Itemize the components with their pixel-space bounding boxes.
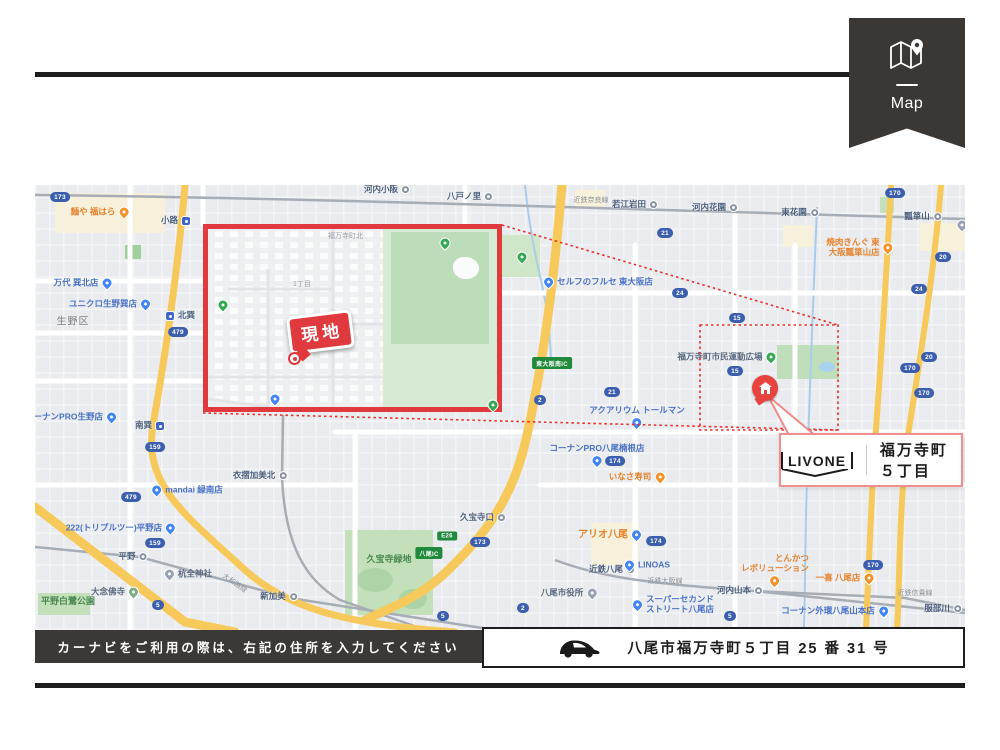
govt-marker-icon xyxy=(584,585,600,601)
poi-コーナンPRO八尾楠根店: コーナンPRO八尾楠根店 xyxy=(550,444,645,466)
poi-コーナン外環八尾山本店: コーナン外環八尾山本店 xyxy=(781,606,889,617)
poi-若江岩田: 若江岩田 xyxy=(612,200,658,210)
st-sub-marker-icon xyxy=(155,421,165,431)
address-text: 八尾市福万寺町５丁目 25 番 31 号 xyxy=(627,637,889,658)
route-badge-5: 5 xyxy=(152,600,164,610)
address-box: 八尾市福万寺町５丁目 25 番 31 号 xyxy=(482,627,965,668)
shop-marker-icon xyxy=(99,275,115,291)
st-rail-marker-icon xyxy=(401,185,410,194)
shop-marker-icon xyxy=(589,453,605,469)
poi-mandai-緑南店: mandai 緑南店 xyxy=(151,485,223,496)
map-inset: 福万寺町北 1丁目 現地 xyxy=(203,224,502,412)
route-badge-170: 170 xyxy=(914,388,934,398)
map-icon xyxy=(888,38,926,77)
poi-pin xyxy=(517,252,528,263)
poi-瓢箪山: 瓢箪山 xyxy=(904,212,942,222)
poi-八尾市役所: 八尾市役所 xyxy=(541,588,598,599)
poi-新加美: 新加美 xyxy=(260,592,298,602)
poi-pin-b xyxy=(270,394,281,405)
shop-marker-icon xyxy=(629,415,645,431)
poi-大和路線: 大和路線 xyxy=(220,573,248,596)
poi-近鉄大阪線: 近鉄大阪線 xyxy=(648,578,683,586)
poi-衣摺加美北: 衣摺加美北 xyxy=(233,471,288,481)
map-ribbon: Map xyxy=(849,18,965,148)
house-icon xyxy=(759,382,772,394)
map[interactable]: 小路北巽南巽河内小阪八戸ノ里若江岩田河内花園東花園瓢箪山久宝寺口近鉄八尾河内山本… xyxy=(35,185,965,630)
route-badge-21: 21 xyxy=(604,387,620,397)
page: Map xyxy=(0,0,1000,750)
pin-g-marker-icon xyxy=(954,217,965,233)
food-marker-icon xyxy=(880,240,896,256)
route-badge-479: 479 xyxy=(121,492,141,502)
food-marker-icon xyxy=(767,572,783,588)
shrine-marker-icon xyxy=(162,566,178,582)
route-badge-173: 173 xyxy=(50,192,70,202)
pin-marker-icon xyxy=(437,235,453,251)
route-badge-24: 24 xyxy=(672,288,688,298)
site-home-marker xyxy=(752,375,778,401)
route-badge-173: 173 xyxy=(470,537,490,547)
poi-大念佛寺: 大念佛寺 xyxy=(91,587,139,598)
route-badge-159: 159 xyxy=(145,538,165,548)
food-marker-icon xyxy=(861,570,877,586)
route-badge-170: 170 xyxy=(863,560,883,570)
poi-久宝寺口: 久宝寺口 xyxy=(460,513,506,523)
inset-pin-layer xyxy=(208,229,497,407)
poi-南巽: 南巽 xyxy=(135,421,165,431)
shop-marker-icon xyxy=(630,597,646,613)
route-badge-21: 21 xyxy=(657,228,673,238)
route-badge-159: 159 xyxy=(145,442,165,452)
top-rule xyxy=(35,72,849,77)
navi-instruction-bar: カーナビをご利用の際は、右記の住所を入力してください xyxy=(35,630,482,663)
poi-河内山本: 河内山本 xyxy=(717,586,763,596)
st-rail-marker-icon xyxy=(810,208,819,217)
ribbon-label: Map xyxy=(891,95,924,113)
st-rail-marker-icon xyxy=(729,203,738,212)
temple-marker-icon xyxy=(126,584,142,600)
poi-pin xyxy=(218,300,229,311)
poi-生野区: 生野区 xyxy=(57,316,90,328)
shop-marker-icon xyxy=(163,520,179,536)
pin-marker-icon xyxy=(485,397,501,413)
poi-北巽: 北巽 xyxy=(165,311,195,321)
food-marker-icon xyxy=(652,469,668,485)
poi-スーパーセカンド-ストリート八尾店: スーパーセカンドストリート八尾店 xyxy=(632,595,714,615)
pin-marker-icon xyxy=(215,297,231,313)
poi-アリオ八尾: アリオ八尾 xyxy=(578,529,642,541)
route-badge-479: 479 xyxy=(168,327,188,337)
shop-marker-icon xyxy=(149,482,165,498)
navi-instruction-text: カーナビをご利用の際は、右記の住所を入力してください xyxy=(57,637,459,656)
route-badge-170: 170 xyxy=(885,188,905,198)
pin-b-marker-icon xyxy=(267,391,283,407)
livone-logo: LIVONE xyxy=(781,452,853,469)
poi-LINOAS: LINOAS xyxy=(624,560,670,571)
route-badge-5: 5 xyxy=(437,611,449,621)
st-rail-marker-icon xyxy=(484,192,493,201)
shop-marker-icon xyxy=(875,603,891,619)
route-badge-15: 15 xyxy=(729,313,745,323)
car-icon xyxy=(557,638,601,658)
poi-ユニクロ生野巽店: ユニクロ生野巽店 xyxy=(69,299,151,310)
poi-服部川: 服部川 xyxy=(924,604,962,614)
callout-divider xyxy=(866,445,867,475)
route-badge-170: 170 xyxy=(900,363,920,373)
poi-pin xyxy=(440,238,451,249)
poi-222(トリプルツー)平野店: 222(トリプルツー)平野店 xyxy=(66,523,176,534)
poi-平野: 平野 xyxy=(118,552,147,562)
poi-一喜-八尾店: 一喜 八尾店 xyxy=(816,573,875,584)
route-badge-174: 174 xyxy=(646,536,666,546)
poi-pin-g xyxy=(957,220,966,231)
food-marker-icon xyxy=(116,204,132,220)
route-badge-八尾IC: 八尾IC xyxy=(415,547,442,559)
poi-東花園: 東花園 xyxy=(781,208,819,218)
mall-marker-icon xyxy=(629,527,645,543)
st-rail-marker-icon xyxy=(953,604,962,613)
poi-万代-巽北店: 万代 巽北店 xyxy=(54,278,113,289)
livone-logo-chevron xyxy=(781,469,849,477)
poi-とんかつ-レボリューション: とんかつレボリューション xyxy=(741,554,809,586)
location-callout: LIVONE 福万寺町５丁目 xyxy=(779,433,963,487)
poi-pin xyxy=(488,400,499,411)
st-rail-marker-icon xyxy=(649,200,658,209)
st-sub-marker-icon xyxy=(165,311,175,321)
route-badge-174: 174 xyxy=(605,456,625,466)
route-badge-20: 20 xyxy=(921,352,937,362)
site-label-bubble: 現地 xyxy=(286,309,355,355)
poi-セルフのフルセ-東大阪店: セルフのフルセ 東大阪店 xyxy=(543,277,653,288)
st-rail-marker-icon xyxy=(289,592,298,601)
st-rail-marker-icon xyxy=(497,513,506,522)
poi-コーナンPRO生野店: コーナンPRO生野店 xyxy=(35,412,117,423)
inset-area-label: 福万寺町北 xyxy=(328,231,363,241)
poi-いなさ寿司: いなさ寿司 xyxy=(609,472,666,483)
poi-近鉄信貴線: 近鉄信貴線 xyxy=(898,590,933,598)
poi-八戸ノ里: 八戸ノ里 xyxy=(447,192,493,202)
shop-marker-icon xyxy=(138,296,154,312)
poi-近鉄奈良線: 近鉄奈良線 xyxy=(574,197,609,205)
poi-河内花園: 河内花園 xyxy=(692,203,738,213)
st-rail-marker-icon xyxy=(139,552,148,561)
route-badge-東大阪南IC: 東大阪南IC xyxy=(532,357,572,369)
route-badge-5: 5 xyxy=(724,611,736,621)
route-badge-20: 20 xyxy=(935,252,951,262)
shop-marker-icon xyxy=(622,557,638,573)
livone-logo-text: LIVONE xyxy=(788,453,846,469)
st-rail-marker-icon xyxy=(278,471,287,480)
pin-marker-icon xyxy=(514,249,530,265)
route-badge-2: 2 xyxy=(534,395,546,405)
poi-福万寺町市民運動広場: 福万寺町市民運動広場 xyxy=(677,352,776,363)
st-sub-marker-icon xyxy=(181,216,191,226)
st-rail-marker-icon xyxy=(933,212,942,221)
poi-アクアリウム-トールマン: アクアリウム トールマン xyxy=(589,406,684,428)
route-badge-2: 2 xyxy=(517,603,529,613)
route-badge-24: 24 xyxy=(911,284,927,294)
route-badge-E26: E26 xyxy=(437,532,457,541)
site-point-marker xyxy=(288,352,301,365)
park-poi-marker-icon xyxy=(763,349,779,365)
poi-焼肉きんぐ-東-大阪瓢箪山店: 焼肉きんぐ 東大阪瓢箪山店 xyxy=(826,238,893,258)
poi-杭全神社: 杭全神社 xyxy=(164,569,212,580)
route-badge-15: 15 xyxy=(727,366,743,376)
poi-小路: 小路 xyxy=(161,216,191,226)
poi-河内小阪: 河内小阪 xyxy=(364,185,410,195)
poi-平野白鷺公園: 平野白鷺公園 xyxy=(41,596,95,606)
callout-place-name: 福万寺町５丁目 xyxy=(880,439,961,481)
st-rail-marker-icon xyxy=(754,586,763,595)
poi-麺や-福はら: 麺や 福はら xyxy=(71,207,130,218)
inset-block-label: 1丁目 xyxy=(293,279,311,289)
poi-久宝寺緑地: 久宝寺緑地 xyxy=(366,554,411,564)
ribbon-divider xyxy=(896,84,918,86)
shop-marker-icon xyxy=(541,274,557,290)
shop-marker-icon xyxy=(104,409,120,425)
bottom-rule xyxy=(35,683,965,688)
